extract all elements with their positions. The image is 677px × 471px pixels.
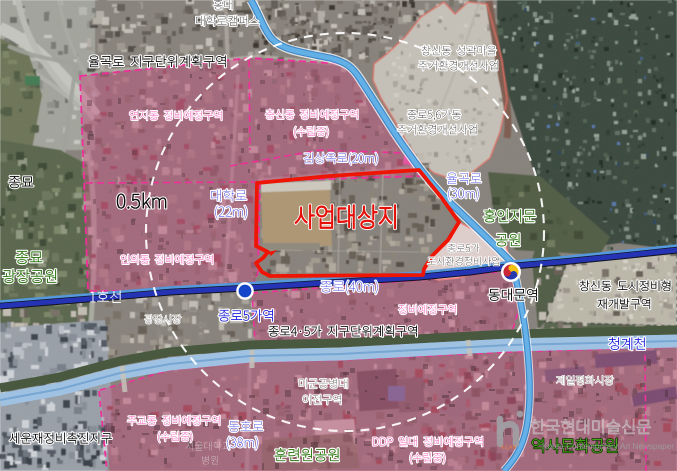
- svg-text:KCAN: KCAN: [501, 445, 517, 451]
- svg-text:Korea Contemporary Art Newspap: Korea Contemporary Art Newspaper: [542, 442, 674, 451]
